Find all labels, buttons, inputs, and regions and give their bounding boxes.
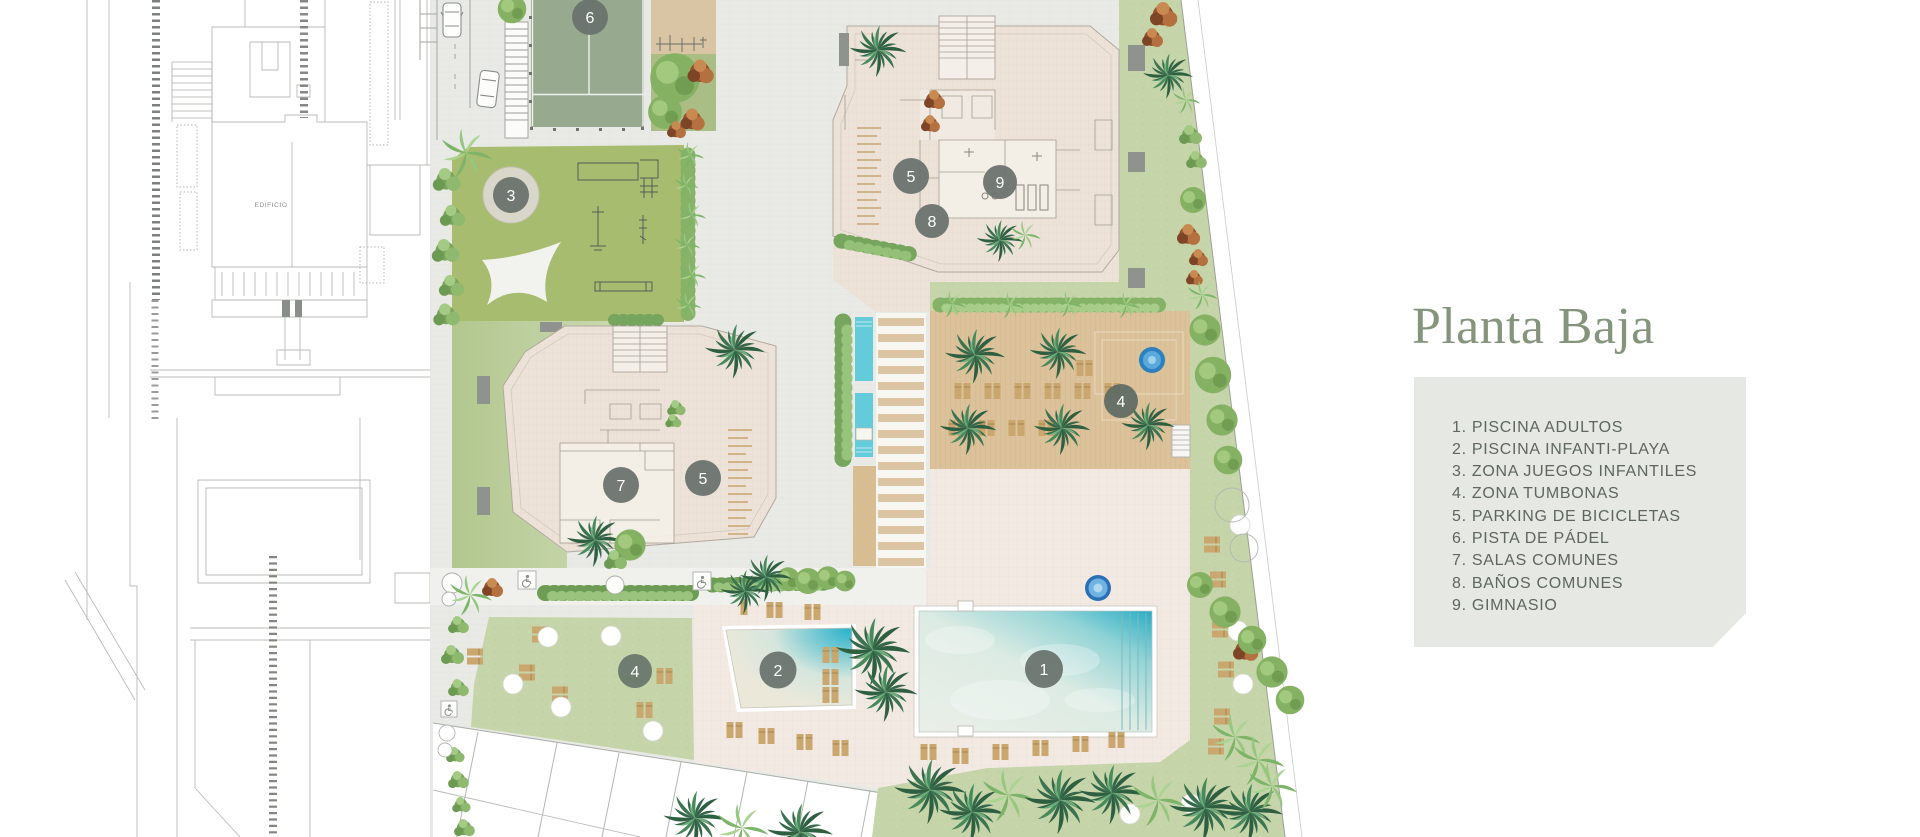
svg-text:3. ZONA JUEGOS INFANTILES: 3. ZONA JUEGOS INFANTILES [1452, 463, 1697, 480]
svg-text:8. BAÑOS COMUNES: 8. BAÑOS COMUNES [1452, 572, 1623, 592]
svg-text:1: 1 [1040, 662, 1049, 679]
svg-text:3: 3 [507, 188, 516, 205]
svg-text:4: 4 [631, 664, 640, 681]
svg-text:1. PISCINA ADULTOS: 1. PISCINA ADULTOS [1452, 419, 1623, 436]
svg-text:EDIFICIO: EDIFICIO [255, 202, 288, 209]
svg-text:5. PARKING DE BICICLETAS: 5. PARKING DE BICICLETAS [1452, 508, 1681, 525]
svg-text:9. GIMNASIO: 9. GIMNASIO [1452, 597, 1558, 614]
svg-text:Planta Baja: Planta Baja [1412, 298, 1655, 355]
svg-text:6. PISTA DE PÁDEL: 6. PISTA DE PÁDEL [1452, 528, 1609, 547]
svg-text:4. ZONA TUMBONAS: 4. ZONA TUMBONAS [1452, 485, 1619, 502]
svg-text:4: 4 [1117, 394, 1126, 411]
svg-text:8: 8 [928, 214, 937, 231]
svg-text:5: 5 [699, 471, 708, 488]
svg-text:7. SALAS COMUNES: 7. SALAS COMUNES [1452, 552, 1619, 569]
svg-text:5: 5 [907, 169, 916, 186]
svg-text:7: 7 [617, 478, 626, 495]
svg-text:9: 9 [996, 175, 1005, 192]
svg-text:2: 2 [774, 663, 783, 680]
svg-text:6: 6 [586, 10, 595, 27]
svg-text:2. PISCINA INFANTI-PLAYA: 2. PISCINA INFANTI-PLAYA [1452, 441, 1670, 458]
